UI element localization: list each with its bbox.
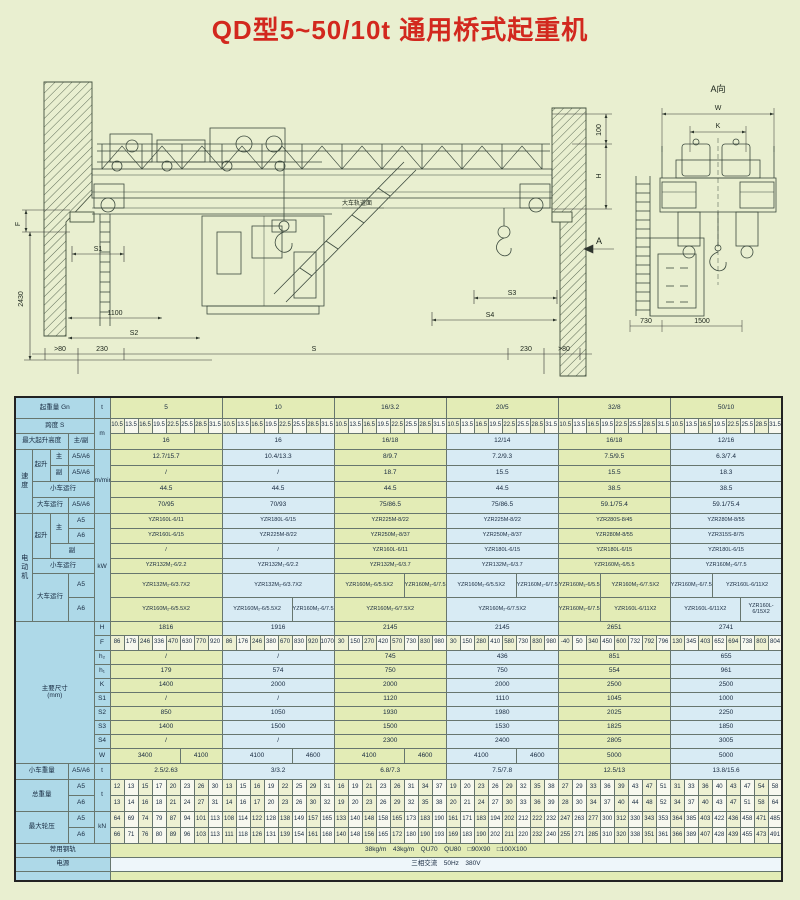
grid-cell: 35: [418, 795, 432, 811]
data-cell: YZR160L-6/11X2: [712, 573, 782, 597]
grid-cell: 280: [474, 635, 488, 650]
data-cell: /: [110, 465, 222, 481]
data-cell: 850: [110, 706, 222, 720]
row-label: 小车运行: [32, 481, 94, 497]
grid-cell: 436: [726, 811, 740, 827]
grid-cell: 491: [768, 827, 782, 843]
data-cell: 6.3/7.4: [670, 449, 782, 465]
dim-2430-label: 2430: [18, 291, 25, 307]
grid-cell: 58: [768, 779, 782, 795]
grid-cell: 31.5: [656, 418, 670, 433]
grid-cell: 420: [376, 635, 390, 650]
end-view-drawing: A向 W K 730 1500: [622, 80, 794, 340]
grid-cell: 804: [768, 635, 782, 650]
grid-cell: 738: [740, 635, 754, 650]
row-label: [15, 871, 110, 881]
data-cell: YZR160M₂-6/5.5X2: [446, 573, 516, 597]
row-label: 电源: [15, 857, 110, 871]
grid-cell: 69: [124, 811, 138, 827]
grid-cell: 13.5: [572, 418, 586, 433]
grid-cell: 28.5: [306, 418, 320, 433]
grid-cell: 343: [642, 811, 656, 827]
data-cell: 59.1/75.4: [558, 497, 670, 513]
row-label: h₁: [94, 664, 110, 678]
data-cell: YZR160L-6/15: [110, 528, 222, 543]
grid-cell: 10.5: [222, 418, 236, 433]
grid-cell: 161: [306, 827, 320, 843]
grid-cell: 23: [362, 795, 376, 811]
grid-cell: 485: [768, 811, 782, 827]
grid-cell: 138: [278, 811, 292, 827]
grid-cell: 161: [446, 811, 460, 827]
grid-cell: 12: [110, 779, 124, 795]
grid-cell: 19: [446, 779, 460, 795]
grid-cell: 212: [516, 811, 530, 827]
row-label: 最大轮压: [15, 811, 68, 843]
grid-cell: 13: [222, 779, 236, 795]
data-cell: 12/14: [446, 433, 558, 449]
grid-cell: 380: [264, 635, 278, 650]
data-cell: /: [110, 543, 222, 558]
data-cell: YZR160M₂-6/7.5X2: [334, 597, 446, 621]
data-cell: 59.1/75.4: [670, 497, 782, 513]
grid-cell: 30: [208, 779, 222, 795]
data-cell: YZR160M₁-6/5.5: [558, 558, 670, 573]
grid-cell: 263: [572, 811, 586, 827]
grid-cell: 980: [432, 635, 446, 650]
data-cell: YZR160M₂-6/7.5X2: [446, 597, 558, 621]
grid-cell: 190: [474, 827, 488, 843]
grid-cell: 920: [306, 635, 320, 650]
data-cell: /: [222, 543, 334, 558]
grid-cell: 150: [460, 635, 474, 650]
grid-cell: 232: [544, 811, 558, 827]
grid-cell: 168: [320, 827, 334, 843]
grid-cell: 246: [250, 635, 264, 650]
spec-table: 起重量 Gnt51016/3.220/532/850/10跨度 Sm10.513…: [14, 396, 783, 882]
grid-cell: 30: [502, 795, 516, 811]
grid-cell: 43: [628, 779, 642, 795]
grid-cell: 28.5: [754, 418, 768, 433]
grid-cell: 28.5: [530, 418, 544, 433]
data-cell: 1050: [222, 706, 334, 720]
data-cell: 2145: [334, 621, 446, 635]
grid-cell: 39: [544, 795, 558, 811]
grid-cell: 193: [432, 827, 446, 843]
grid-cell: 33: [516, 795, 530, 811]
grid-cell: 80: [152, 827, 166, 843]
grid-cell: 222: [530, 811, 544, 827]
grid-cell: 126: [250, 827, 264, 843]
data-cell: 6.8/7.3: [334, 763, 446, 779]
row-label: 最大起升高度: [15, 433, 68, 449]
grid-cell: 17: [152, 779, 166, 795]
grid-cell: 64: [110, 811, 124, 827]
data-cell: 5: [110, 397, 222, 418]
grid-cell: 40: [698, 795, 712, 811]
grid-cell: 22: [278, 779, 292, 795]
dim-gt80-right-label: >80: [558, 346, 570, 353]
data-cell: 44.5: [222, 481, 334, 497]
wall-sections: [44, 82, 586, 376]
data-cell: YZR160M₂-6/5.5X2: [558, 573, 600, 597]
row-label: kW: [94, 513, 110, 621]
grid-cell: 17: [250, 795, 264, 811]
grid-cell: 730: [404, 635, 418, 650]
data-cell: 1500: [334, 720, 446, 734]
row-label: 荐用钢轨: [15, 843, 110, 857]
grid-cell: 183: [474, 811, 488, 827]
data-cell: 5000: [558, 748, 670, 763]
data-cell: 8/9.7: [334, 449, 446, 465]
grid-cell: 64: [768, 795, 782, 811]
grid-cell: 15: [236, 779, 250, 795]
grid-cell: 29: [390, 795, 404, 811]
grid-cell: 407: [698, 827, 712, 843]
data-cell: 2300: [334, 734, 446, 748]
grid-cell: 176: [124, 635, 138, 650]
grid-cell: 114: [236, 811, 250, 827]
grid-cell: 148: [348, 827, 362, 843]
grid-cell: 40: [712, 779, 726, 795]
data-cell: YZR160L-6/11X2: [600, 597, 670, 621]
data-cell: 38kg/m 43kg/m QU70 QU80 □90X90 □100X100: [110, 843, 782, 857]
grid-cell: 103: [194, 827, 208, 843]
grid-cell: 364: [670, 811, 684, 827]
grid-cell: 10.5: [558, 418, 572, 433]
row-label: S2: [94, 706, 110, 720]
row-label: m/min: [94, 449, 110, 513]
grid-cell: 58: [754, 795, 768, 811]
row-label: W: [94, 748, 110, 763]
data-cell: 3005: [670, 734, 782, 748]
grid-cell: 19.5: [152, 418, 166, 433]
grid-cell: 176: [236, 635, 250, 650]
grid-cell: 43: [712, 795, 726, 811]
data-cell: YZR160M₂-6/7.5X2: [558, 597, 600, 621]
grid-cell: 31.5: [320, 418, 334, 433]
data-cell: /: [222, 465, 334, 481]
data-cell: YZR225M-8/22: [334, 513, 446, 528]
data-cell: YZR132M₁-6/2.2: [110, 558, 222, 573]
grid-cell: 76: [138, 827, 152, 843]
grid-cell: 150: [348, 635, 362, 650]
grid-cell: 50: [572, 635, 586, 650]
grid-cell: 47: [726, 795, 740, 811]
data-cell: 961: [670, 664, 782, 678]
row-label: A6: [68, 827, 94, 843]
data-cell: YZR250M₁-8/37: [446, 528, 558, 543]
grid-cell: 44: [628, 795, 642, 811]
grid-cell: -40: [558, 635, 572, 650]
grid-cell: 366: [670, 827, 684, 843]
grid-cell: 31: [404, 779, 418, 795]
data-cell: /: [222, 734, 334, 748]
grid-cell: 730: [516, 635, 530, 650]
grid-cell: 51: [656, 779, 670, 795]
grid-cell: 20: [166, 779, 180, 795]
data-cell: YZR160L-6/11X2: [670, 597, 740, 621]
grid-cell: 312: [614, 811, 628, 827]
data-cell: /: [110, 650, 222, 664]
data-cell: YZR160M₂-6/5.5X2: [334, 573, 404, 597]
grid-cell: 180: [404, 827, 418, 843]
row-label: A5/A6: [68, 449, 94, 465]
grid-cell: 22.5: [726, 418, 740, 433]
dim-230-right-label: 230: [520, 346, 532, 353]
row-label: 主: [50, 513, 68, 543]
grid-cell: 31.5: [768, 418, 782, 433]
cab-and-stairs: [92, 162, 416, 326]
row-label: m: [94, 418, 110, 449]
data-cell: 1400: [110, 720, 222, 734]
row-label: A6: [68, 795, 94, 811]
grid-cell: 13.5: [124, 418, 138, 433]
grid-cell: 22.5: [502, 418, 516, 433]
grid-cell: 48: [642, 795, 656, 811]
grid-cell: 86: [110, 635, 124, 650]
grid-cell: 14: [222, 795, 236, 811]
dim-1500-label: 1500: [694, 318, 710, 325]
data-cell: YZR280S-8/45: [558, 513, 670, 528]
data-cell: 44.5: [446, 481, 558, 497]
data-cell: /: [222, 650, 334, 664]
grid-cell: 37: [432, 779, 446, 795]
grid-cell: 25.5: [628, 418, 642, 433]
data-cell: 1916: [222, 621, 334, 635]
grid-cell: 79: [152, 811, 166, 827]
grid-cell: 118: [236, 827, 250, 843]
row-label: A5: [68, 779, 94, 795]
grid-cell: 246: [138, 635, 152, 650]
data-cell: 2.5/2.63: [110, 763, 222, 779]
grid-cell: 26: [292, 795, 306, 811]
dim-f-label: F: [15, 222, 22, 226]
grid-cell: 31.5: [432, 418, 446, 433]
grid-cell: 28.5: [642, 418, 656, 433]
grid-cell: 455: [740, 827, 754, 843]
grid-cell: 471: [754, 811, 768, 827]
data-cell: 20/5: [446, 397, 558, 418]
row-label: 电动机: [15, 513, 32, 621]
data-cell: 70/95: [110, 497, 222, 513]
grid-cell: 113: [208, 827, 222, 843]
dim-730-label: 730: [640, 318, 652, 325]
data-cell: YZR132M₂-6/3.7X2: [110, 573, 222, 597]
data-cell: 12.7/15.7: [110, 449, 222, 465]
dim-230-left-label: 230: [96, 346, 108, 353]
grid-cell: 34: [418, 779, 432, 795]
dim-span-label: S: [312, 346, 317, 353]
grid-cell: 113: [208, 811, 222, 827]
row-label: t: [94, 397, 110, 418]
grid-cell: 277: [586, 811, 600, 827]
row-label: 主/副: [68, 433, 94, 449]
data-cell: 4600: [516, 748, 558, 763]
grid-cell: 830: [530, 635, 544, 650]
grid-cell: 458: [740, 811, 754, 827]
dim-gt80-left-label: >80: [54, 346, 66, 353]
row-label: 起升: [32, 513, 50, 558]
grid-cell: 600: [614, 635, 628, 650]
row-label: 小车运行: [32, 558, 94, 573]
grid-cell: 27: [488, 795, 502, 811]
grid-cell: 52: [656, 795, 670, 811]
row-label: t: [94, 779, 110, 811]
data-cell: YZR160L-6/11: [334, 543, 446, 558]
grid-cell: 34: [670, 795, 684, 811]
data-cell: 2400: [446, 734, 558, 748]
grid-cell: 26: [194, 779, 208, 795]
grid-cell: 23: [376, 779, 390, 795]
grid-cell: 694: [726, 635, 740, 650]
data-cell: /: [222, 692, 334, 706]
grid-cell: 16: [250, 779, 264, 795]
grid-cell: 71: [124, 827, 138, 843]
grid-cell: 732: [628, 635, 642, 650]
grid-cell: 74: [138, 811, 152, 827]
grid-cell: 13.5: [236, 418, 250, 433]
data-cell: YZR160M₂-6/7.5X2: [600, 573, 670, 597]
grid-cell: 171: [460, 811, 474, 827]
dimension-lines: [22, 114, 614, 374]
data-cell: YZR160M₂-6/7.5X2: [292, 597, 334, 621]
data-cell: 2500: [670, 678, 782, 692]
row-label: 总重量: [15, 779, 68, 811]
grid-cell: 19.5: [376, 418, 390, 433]
data-cell: 44.5: [334, 481, 446, 497]
data-cell: 2145: [446, 621, 558, 635]
data-cell: YZR132M₂-6/3.7: [446, 558, 558, 573]
data-cell: YZR160M₂-6/5.5X2: [110, 597, 222, 621]
data-cell: 16: [110, 433, 222, 449]
grid-cell: 340: [586, 635, 600, 650]
grid-cell: 255: [558, 827, 572, 843]
row-label: 起重量 Gn: [15, 397, 94, 418]
data-cell: YZR225M-8/22: [222, 528, 334, 543]
grid-cell: 183: [418, 811, 432, 827]
grid-cell: 86: [222, 635, 236, 650]
grid-cell: 830: [418, 635, 432, 650]
data-cell: [110, 871, 782, 881]
data-cell: 2500: [558, 678, 670, 692]
row-label: A5: [68, 513, 94, 528]
grid-cell: 25.5: [740, 418, 754, 433]
rail-surface-label: 大车轨道面: [342, 199, 372, 207]
grid-cell: 172: [390, 827, 404, 843]
data-cell: YZR160L-6/11: [110, 513, 222, 528]
data-cell: 4600: [404, 748, 446, 763]
grid-cell: 473: [754, 827, 768, 843]
grid-cell: 165: [390, 811, 404, 827]
grid-cell: 34: [586, 795, 600, 811]
row-label: A6: [68, 528, 94, 543]
grid-cell: 29: [572, 779, 586, 795]
data-cell: 1110: [446, 692, 558, 706]
grid-cell: 139: [278, 827, 292, 843]
grid-cell: 183: [460, 827, 474, 843]
side-view-drawing: F 2430 S1 1100 S2 >80 230 S 230 >80 100 …: [12, 74, 622, 392]
data-cell: 1530: [446, 720, 558, 734]
grid-cell: 94: [180, 811, 194, 827]
dim-100-label: 100: [596, 124, 603, 136]
grid-cell: 351: [642, 827, 656, 843]
grid-cell: 25: [292, 779, 306, 795]
grid-cell: 285: [586, 827, 600, 843]
grid-cell: 22.5: [390, 418, 404, 433]
grid-cell: 310: [600, 827, 614, 843]
grid-cell: 13.5: [460, 418, 474, 433]
data-cell: 2000: [222, 678, 334, 692]
data-cell: 1816: [110, 621, 222, 635]
grid-cell: 10.5: [110, 418, 124, 433]
data-cell: 745: [334, 650, 446, 664]
data-cell: /: [110, 692, 222, 706]
grid-cell: 320: [614, 827, 628, 843]
grid-cell: 29: [306, 779, 320, 795]
grid-cell: 21: [362, 779, 376, 795]
grid-cell: 211: [502, 827, 516, 843]
grid-cell: 19.5: [264, 418, 278, 433]
grid-cell: 21: [460, 795, 474, 811]
data-cell: 2025: [558, 706, 670, 720]
grid-cell: 40: [614, 795, 628, 811]
grid-cell: 16.5: [250, 418, 264, 433]
data-cell: YZR280M-8/55: [670, 513, 782, 528]
grid-cell: 122: [250, 811, 264, 827]
grid-cell: 403: [698, 811, 712, 827]
grid-cell: 30: [334, 635, 348, 650]
grid-cell: 19: [264, 779, 278, 795]
row-label: S4: [94, 734, 110, 748]
grid-cell: 13: [124, 779, 138, 795]
grid-cell: 470: [166, 635, 180, 650]
grid-cell: 271: [572, 827, 586, 843]
grid-cell: 27: [558, 779, 572, 795]
grid-cell: 15: [138, 779, 152, 795]
row-label: h₂: [94, 650, 110, 664]
data-cell: 750: [446, 664, 558, 678]
catalog-page: QD型5~50/10t 通用桥式起重机: [0, 0, 800, 900]
grid-cell: 10.5: [446, 418, 460, 433]
grid-cell: 23: [278, 795, 292, 811]
grid-cell: 157: [306, 811, 320, 827]
data-cell: 7.2/9.3: [446, 449, 558, 465]
bridge-girder: [92, 144, 552, 212]
grid-cell: 300: [600, 811, 614, 827]
grid-cell: 20: [348, 795, 362, 811]
data-cell: 16/18: [558, 433, 670, 449]
grid-cell: 51: [740, 795, 754, 811]
grid-cell: 336: [152, 635, 166, 650]
grid-cell: 31: [320, 779, 334, 795]
grid-cell: 16: [334, 779, 348, 795]
data-cell: 3/3.2: [222, 763, 334, 779]
data-cell: YZR160M₂-6/7.5X2: [670, 573, 712, 597]
grid-cell: 13.5: [348, 418, 362, 433]
data-cell: 750: [334, 664, 446, 678]
grid-cell: 353: [656, 811, 670, 827]
grid-cell: 39: [614, 779, 628, 795]
data-cell: 75/86.5: [334, 497, 446, 513]
data-cell: 38.5: [558, 481, 670, 497]
dim-s2-label: S2: [130, 330, 139, 337]
row-label: A5/A6: [68, 465, 94, 481]
data-cell: 436: [446, 650, 558, 664]
grid-cell: 1070: [320, 635, 334, 650]
data-cell: 655: [670, 650, 782, 664]
grid-cell: 14: [124, 795, 138, 811]
